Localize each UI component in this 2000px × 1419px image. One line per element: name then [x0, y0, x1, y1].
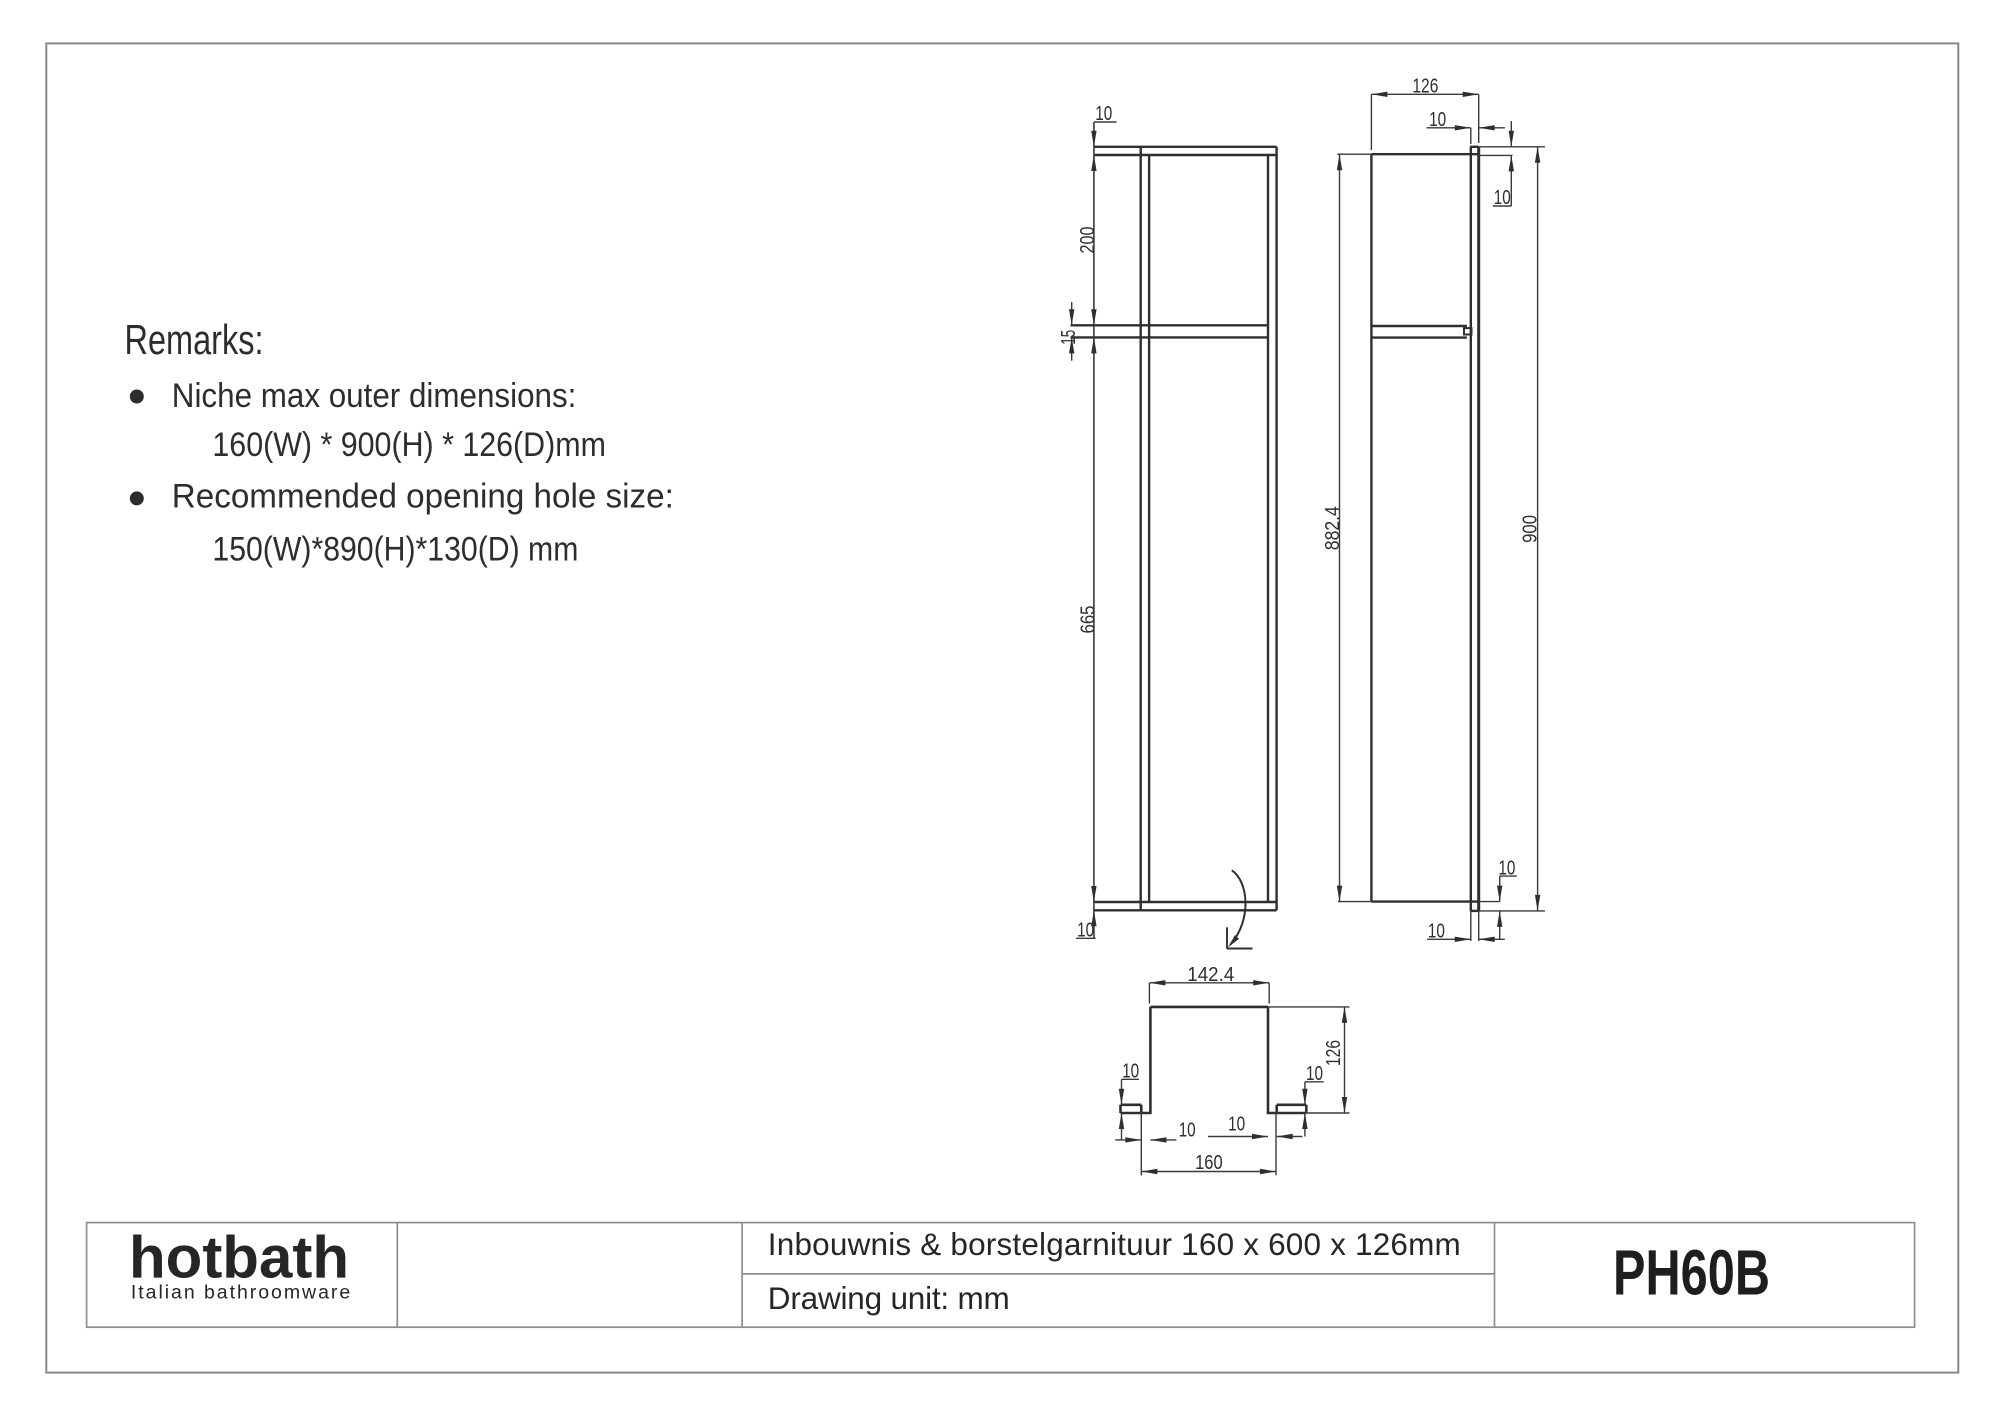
svg-text:10: 10	[1077, 919, 1094, 942]
svg-text:200: 200	[1076, 227, 1099, 254]
svg-text:PH60B: PH60B	[1613, 1236, 1770, 1308]
svg-text:882.4: 882.4	[1321, 506, 1344, 550]
svg-text:10: 10	[1179, 1118, 1196, 1141]
svg-text:10: 10	[1122, 1060, 1139, 1083]
svg-text:10: 10	[1228, 1113, 1245, 1136]
svg-text:Recommended opening hole size: Recommended opening hole size:	[172, 477, 674, 515]
svg-text:126: 126	[1412, 75, 1438, 98]
svg-text:Italian bathroomware: Italian bathroomware	[131, 1282, 350, 1304]
svg-text:Remarks:: Remarks:	[125, 316, 264, 363]
svg-text:150(W)*890(H)*130(D) mm: 150(W)*890(H)*130(D) mm	[212, 530, 578, 568]
svg-text:Niche max outer dimensions:: Niche max outer dimensions:	[172, 377, 577, 415]
svg-text:10: 10	[1494, 186, 1511, 209]
svg-text:10: 10	[1306, 1062, 1323, 1085]
svg-text:10: 10	[1429, 108, 1446, 131]
svg-text:665: 665	[1076, 606, 1099, 634]
svg-text:142.4: 142.4	[1187, 963, 1234, 986]
svg-text:15: 15	[1057, 330, 1080, 345]
svg-text:900: 900	[1518, 515, 1541, 543]
svg-text:Drawing unit: mm: Drawing unit: mm	[768, 1280, 1010, 1316]
svg-text:160: 160	[1195, 1151, 1223, 1174]
svg-text:160(W) * 900(H) * 126(D)mm: 160(W) * 900(H) * 126(D)mm	[212, 426, 606, 464]
svg-text:Inbouwnis & borstelgarnituur: Inbouwnis & borstelgarnituur 160 x 600 x…	[768, 1226, 1461, 1262]
svg-text:10: 10	[1498, 856, 1515, 879]
svg-text:126: 126	[1322, 1040, 1345, 1066]
svg-text:10: 10	[1428, 920, 1445, 943]
svg-text:10: 10	[1095, 102, 1112, 125]
